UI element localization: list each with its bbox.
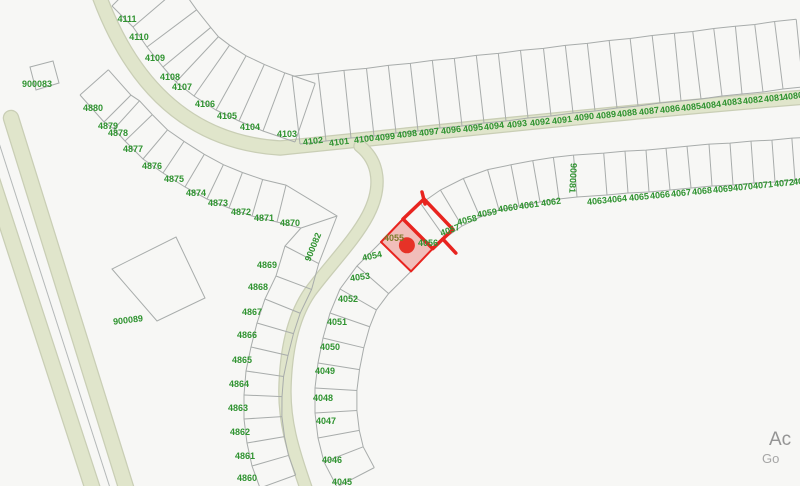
branch-road <box>285 146 377 486</box>
parcel-label-4871: 4871 <box>254 213 274 223</box>
parcel-label-4064: 4064 <box>607 193 628 205</box>
parcel-label-4056: 4056 <box>418 238 438 248</box>
parcel-division <box>207 165 223 199</box>
parcel-division <box>194 45 230 96</box>
parcel-division <box>772 140 775 182</box>
parcel-division <box>246 371 284 376</box>
parcel-label-4072: 4072 <box>774 177 795 189</box>
parcel-division <box>565 45 573 113</box>
parcel-label-4068: 4068 <box>692 185 713 197</box>
parcel-division <box>229 172 242 208</box>
parcel-label-4055: 4055 <box>384 233 404 243</box>
parcel-division <box>687 146 691 188</box>
parcel-label-4061: 4061 <box>518 199 539 212</box>
parcel-division <box>315 388 357 391</box>
parcel-division <box>388 65 396 133</box>
parcel-label-4869: 4869 <box>257 260 277 270</box>
parcel-label-4878: 4878 <box>108 128 128 138</box>
parcel-label-4108: 4108 <box>160 72 180 82</box>
parcel-division <box>476 55 484 123</box>
parcel-label-4066: 4066 <box>650 189 671 201</box>
parcel-division <box>277 185 286 222</box>
parcel-division <box>244 395 282 397</box>
parcel-division <box>147 10 197 47</box>
parcel-division <box>646 150 649 192</box>
parcel-division <box>755 25 763 92</box>
parcel-division <box>587 43 595 111</box>
parcel-label-4059: 4059 <box>476 206 497 219</box>
divided-road-west-lane-edge <box>0 118 97 486</box>
parcel-label-4870: 4870 <box>280 218 300 228</box>
parcel-division <box>604 153 607 195</box>
parcel-label-4877: 4877 <box>123 144 143 154</box>
parcel-label-4104: 4104 <box>240 122 260 132</box>
parcel-division <box>630 38 638 106</box>
map-svg: 4111411041094108410741064105410441034102… <box>0 0 800 486</box>
parcel-division <box>260 475 296 486</box>
parcel-label-4067: 4067 <box>671 187 692 199</box>
parcel-division <box>735 26 742 94</box>
parcel-division <box>276 276 312 289</box>
parcel-label-4073: 4073 <box>793 175 800 187</box>
parcel-label-4103: 4103 <box>277 129 297 139</box>
parcel-division <box>366 68 374 136</box>
parcel-division <box>163 27 211 67</box>
parcel-division <box>125 115 152 141</box>
parcel-label-4863: 4863 <box>228 403 248 413</box>
parcel-division <box>775 22 783 89</box>
parcel-label-4046: 4046 <box>322 455 342 465</box>
parcel-division <box>792 138 795 180</box>
parcel-label-4862: 4862 <box>230 427 250 437</box>
divided-road-centerline <box>0 118 112 486</box>
parcel-label-4048: 4048 <box>313 393 333 403</box>
parcel-division <box>674 33 681 101</box>
parcel-label-4060: 4060 <box>497 202 518 215</box>
parcel-label-4860: 4860 <box>237 473 257 483</box>
parcel-division <box>216 56 246 110</box>
parcel-label-4053: 4053 <box>349 271 370 284</box>
parcel-division <box>625 151 628 193</box>
parcel-label-4876: 4876 <box>142 161 162 171</box>
parcel-row-arc_nw-outer-edge <box>156 0 315 83</box>
parcel-division <box>553 157 559 199</box>
parcel-division <box>344 70 351 138</box>
parcel-label-4050: 4050 <box>320 342 340 352</box>
parcel-label-4868: 4868 <box>248 282 268 292</box>
attribution-text: Ac <box>769 430 791 450</box>
parcel-division <box>609 40 617 108</box>
parcel-division <box>252 180 263 216</box>
parcel-label-4865: 4865 <box>232 355 252 365</box>
parcel-label-4051: 4051 <box>327 317 347 327</box>
parcel-label-4106: 4106 <box>195 99 215 109</box>
parcel-division <box>263 73 285 131</box>
parcel-division <box>185 154 204 187</box>
parcel-label-4063: 4063 <box>587 195 608 207</box>
parcel-division <box>652 35 660 103</box>
parcel-label-900089: 900089 <box>112 313 143 327</box>
parcel-label-900081: 900081 <box>567 163 579 194</box>
parcel-label-4069: 4069 <box>713 183 734 195</box>
parcel-division <box>318 73 326 141</box>
parcel-label-4111: 4111 <box>117 14 136 24</box>
parcel-division <box>301 216 337 228</box>
parcel-division <box>432 60 440 128</box>
parcel-division <box>693 32 701 99</box>
parcel-division <box>520 50 528 118</box>
parcel-label-4049: 4049 <box>315 366 335 376</box>
parcel-row-row_north-outer-edge <box>292 19 796 76</box>
parcel-label-900083: 900083 <box>22 79 52 89</box>
parcel-division <box>796 19 800 87</box>
parcel-division <box>666 148 670 190</box>
parcel-division <box>163 141 184 173</box>
parcel-division <box>318 430 359 438</box>
parcel-label-4070: 4070 <box>733 181 754 193</box>
map-canvas[interactable]: 4111411041094108410741064105410441034102… <box>0 0 800 486</box>
parcel-division <box>315 410 357 413</box>
parcel-label-4080: 4080 <box>782 90 800 102</box>
parcel-label-4874: 4874 <box>186 188 206 198</box>
parcel-label-4109: 4109 <box>145 53 165 63</box>
parcel-label-4065: 4065 <box>629 191 650 203</box>
parcel-label-4880: 4880 <box>83 103 103 113</box>
parcel-division <box>709 144 712 186</box>
parcel-label-4875: 4875 <box>164 174 184 184</box>
parcel-label-4071: 4071 <box>753 179 774 191</box>
parcel-label-4864: 4864 <box>229 379 249 389</box>
parcel-label-4047: 4047 <box>316 416 336 426</box>
parcel-label-4110: 4110 <box>129 32 149 42</box>
parcel-division <box>104 95 131 122</box>
parcel-division <box>80 70 108 95</box>
attribution-text-2: Go <box>762 452 779 466</box>
parcel-label-4872: 4872 <box>231 207 251 217</box>
parcel-division <box>714 29 722 96</box>
parcel-label-4054: 4054 <box>361 249 383 263</box>
parcel-division <box>112 0 156 6</box>
parcel-label-4058: 4058 <box>456 213 478 228</box>
parcel-division <box>511 165 519 206</box>
parcel-division <box>410 63 418 131</box>
parcel-900089-outline <box>112 237 205 321</box>
parcel-label-900082: 900082 <box>303 231 324 263</box>
parcel-division <box>543 48 551 116</box>
parcel-division <box>295 83 315 142</box>
parcel-label-4866: 4866 <box>237 330 257 340</box>
parcel-division <box>533 161 540 202</box>
parcel-division <box>730 143 733 185</box>
parcel-division <box>143 130 167 159</box>
parcel-division <box>751 141 754 183</box>
parcel-label-4045: 4045 <box>332 477 352 486</box>
parcel-division <box>133 0 180 27</box>
parcel-label-4105: 4105 <box>217 111 237 121</box>
parcel-label-4052: 4052 <box>338 294 358 304</box>
parcel-division <box>244 417 282 419</box>
parcel-division <box>247 437 284 443</box>
selection-outline-spur <box>443 239 456 253</box>
parcel-division <box>454 58 462 126</box>
parcel-label-4867: 4867 <box>242 307 262 317</box>
parcel-division <box>498 53 506 121</box>
parcel-division <box>252 455 289 466</box>
parcel-label-4062: 4062 <box>540 196 561 209</box>
parcel-division <box>239 64 264 121</box>
parcel-label-4107: 4107 <box>172 82 192 92</box>
parcel-label-4861: 4861 <box>235 451 255 461</box>
parcel-division <box>176 37 218 82</box>
parcel-label-4873: 4873 <box>208 198 228 208</box>
